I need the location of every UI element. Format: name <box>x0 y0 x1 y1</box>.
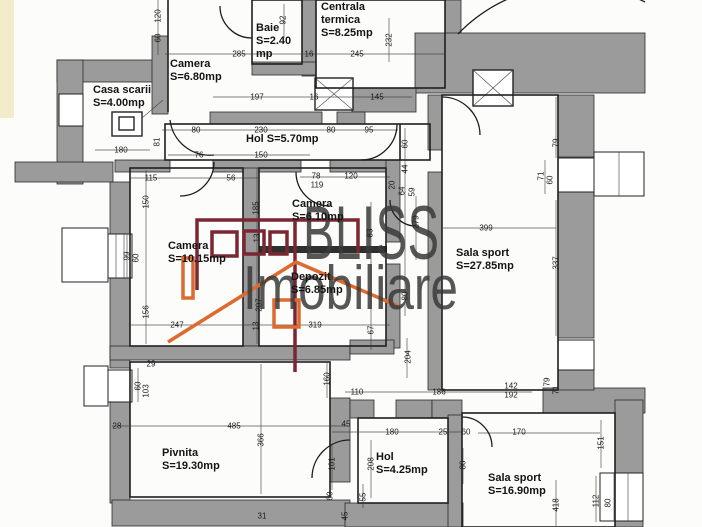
room-label: Pivnita S=19.30mp <box>162 447 252 473</box>
dimension-label: 110 <box>351 388 364 397</box>
dimension-label: 120 <box>344 172 357 181</box>
dimension-label: 20 <box>388 181 397 190</box>
dimension-label: 112 <box>592 495 601 508</box>
room-name: Pivnita <box>162 447 198 459</box>
room-area: S=6.85mp <box>291 284 343 296</box>
dimension-label: 45 <box>342 420 351 429</box>
dimension-label: 185 <box>252 201 261 214</box>
dimension-label: 92 <box>279 16 288 25</box>
dimension-label: 80 <box>401 292 410 301</box>
dimension-label: 28 <box>113 422 122 431</box>
dimension-label: 285 <box>232 50 245 59</box>
dimension-label: 197 <box>250 93 263 102</box>
room-label: Camera S=6.10mp <box>292 198 362 224</box>
dimension-label: 16 <box>310 93 319 102</box>
dimension-label: 156 <box>142 305 151 318</box>
dimension-label: 232 <box>385 33 394 46</box>
dimension-label: 79 <box>552 139 561 148</box>
dimension-label: 119 <box>311 181 324 190</box>
dimension-label: 71 <box>537 172 546 181</box>
dimension-label: 13 <box>253 234 262 243</box>
dimension-label: 80 <box>604 499 613 508</box>
room-name: Sala sport <box>488 472 541 484</box>
dimension-label: 95 <box>365 126 374 135</box>
room-name: Sala sport <box>456 247 509 259</box>
floor-plan-page: { "document": {"type_label": "floor plan… <box>0 0 702 527</box>
dimension-label: 83 <box>366 229 375 238</box>
room-label: Baie S=2.40 mp <box>256 22 308 62</box>
dimension-label: 44 <box>401 165 410 174</box>
dimension-label: 59 <box>408 188 417 197</box>
dimension-label: 80 <box>327 126 336 135</box>
dimension-label: 230 <box>254 126 267 135</box>
dimension-label: 366 <box>257 433 266 446</box>
dimension-label: 80 <box>192 126 201 135</box>
dimension-label: 115 <box>145 174 158 183</box>
dimension-label: 150 <box>142 195 151 208</box>
dimension-label: 103 <box>142 384 151 397</box>
dimension-label: 180 <box>114 146 127 155</box>
room-area: S=4.25mp <box>376 464 428 476</box>
room-area: S=2.40 mp <box>256 35 291 60</box>
dimension-label: 80 <box>459 461 468 470</box>
room-label: Camera S=6.80mp <box>170 58 260 84</box>
room-label: Sala sport S=16.90mp <box>488 472 572 498</box>
room-area: S=16.90mp <box>488 485 546 497</box>
dimension-label: 60 <box>326 492 335 501</box>
dimension-label: 56 <box>227 174 236 183</box>
dimension-label: 81 <box>153 138 162 147</box>
dimension-label: 60 <box>132 254 141 263</box>
dimension-label: 60 <box>154 34 163 43</box>
dimension-label: 485 <box>227 422 240 431</box>
dimension-label: 101 <box>328 457 337 470</box>
dimension-label: 60 <box>401 140 410 149</box>
dimension-label: 337 <box>552 256 561 269</box>
dimension-label: 16 <box>305 50 314 59</box>
dimension-label: 247 <box>170 321 183 330</box>
room-area: S=4.00mp <box>93 97 145 109</box>
dimension-label: 418 <box>552 498 561 511</box>
dimension-label: 67 <box>367 326 376 335</box>
dimension-label: 170 <box>512 428 525 437</box>
room-label: Casa scarii S=4.00mp <box>93 84 171 110</box>
room-name: Hol <box>246 133 264 145</box>
dimension-label: 160 <box>323 372 332 385</box>
room-area: S=8.25mp <box>321 27 373 39</box>
dimension-label: 120 <box>154 9 163 22</box>
dimension-label: 279 <box>412 215 421 228</box>
dimension-label: 186 <box>432 388 445 397</box>
room-area: S=10.15mp <box>168 253 226 265</box>
room-label: Sala sport S=27.85mp <box>456 247 540 273</box>
room-label: Hol S=5.70mp <box>246 133 376 146</box>
room-area: S=6.10mp <box>292 211 344 223</box>
dimension-label: 207 <box>255 298 264 311</box>
dimension-label: 55 <box>359 493 368 502</box>
room-label: Depozit S=6.85mp <box>291 271 371 297</box>
room-name: Camera <box>168 240 208 252</box>
room-area: S=19.30mp <box>162 460 220 472</box>
dimension-label: 13 <box>252 322 261 331</box>
dimension-label: 31 <box>258 512 267 521</box>
dimension-label: 60 <box>462 428 471 437</box>
room-label: Camera S=10.15mp <box>168 240 248 266</box>
dimension-label: 79 <box>543 378 552 387</box>
plan-annotations: Casa scarii S=4.00mpCamera S=6.80mpBaie … <box>0 0 702 527</box>
room-area: S=6.80mp <box>170 71 222 83</box>
dimension-label: 150 <box>254 151 267 160</box>
dimension-label: 76 <box>195 151 204 160</box>
dimension-label: 399 <box>479 224 492 233</box>
dimension-label: 192 <box>504 391 517 400</box>
room-area: S=5.70mp <box>267 133 319 145</box>
dimension-label: 145 <box>370 93 383 102</box>
room-area: S=27.85mp <box>456 260 514 272</box>
dimension-label: 151 <box>597 436 606 449</box>
dimension-label: 29 <box>147 360 156 369</box>
dimension-label: 99 <box>123 252 132 261</box>
room-label: Hol S=4.25mp <box>376 451 438 477</box>
dimension-label: 204 <box>404 350 413 363</box>
dimension-label: 319 <box>308 321 321 330</box>
dimension-label: 245 <box>350 50 363 59</box>
room-name: Depozit <box>291 271 331 283</box>
room-name: Centrala termica <box>321 1 365 26</box>
room-name: Camera <box>170 58 210 70</box>
room-name: Baie <box>256 22 279 34</box>
dimension-label: 64 <box>398 187 407 196</box>
room-name: Camera <box>292 198 332 210</box>
dimension-label: 71 <box>552 386 561 395</box>
dimension-label: 60 <box>546 176 555 185</box>
room-name: Hol <box>376 451 394 463</box>
dimension-label: 180 <box>385 428 398 437</box>
dimension-label: 208 <box>367 457 376 470</box>
dimension-label: 142 <box>504 382 517 391</box>
dimension-label: 78 <box>312 172 321 181</box>
dimension-label: 45 <box>341 512 350 521</box>
dimension-label: 25 <box>439 428 448 437</box>
room-name: Casa scarii <box>93 84 151 96</box>
